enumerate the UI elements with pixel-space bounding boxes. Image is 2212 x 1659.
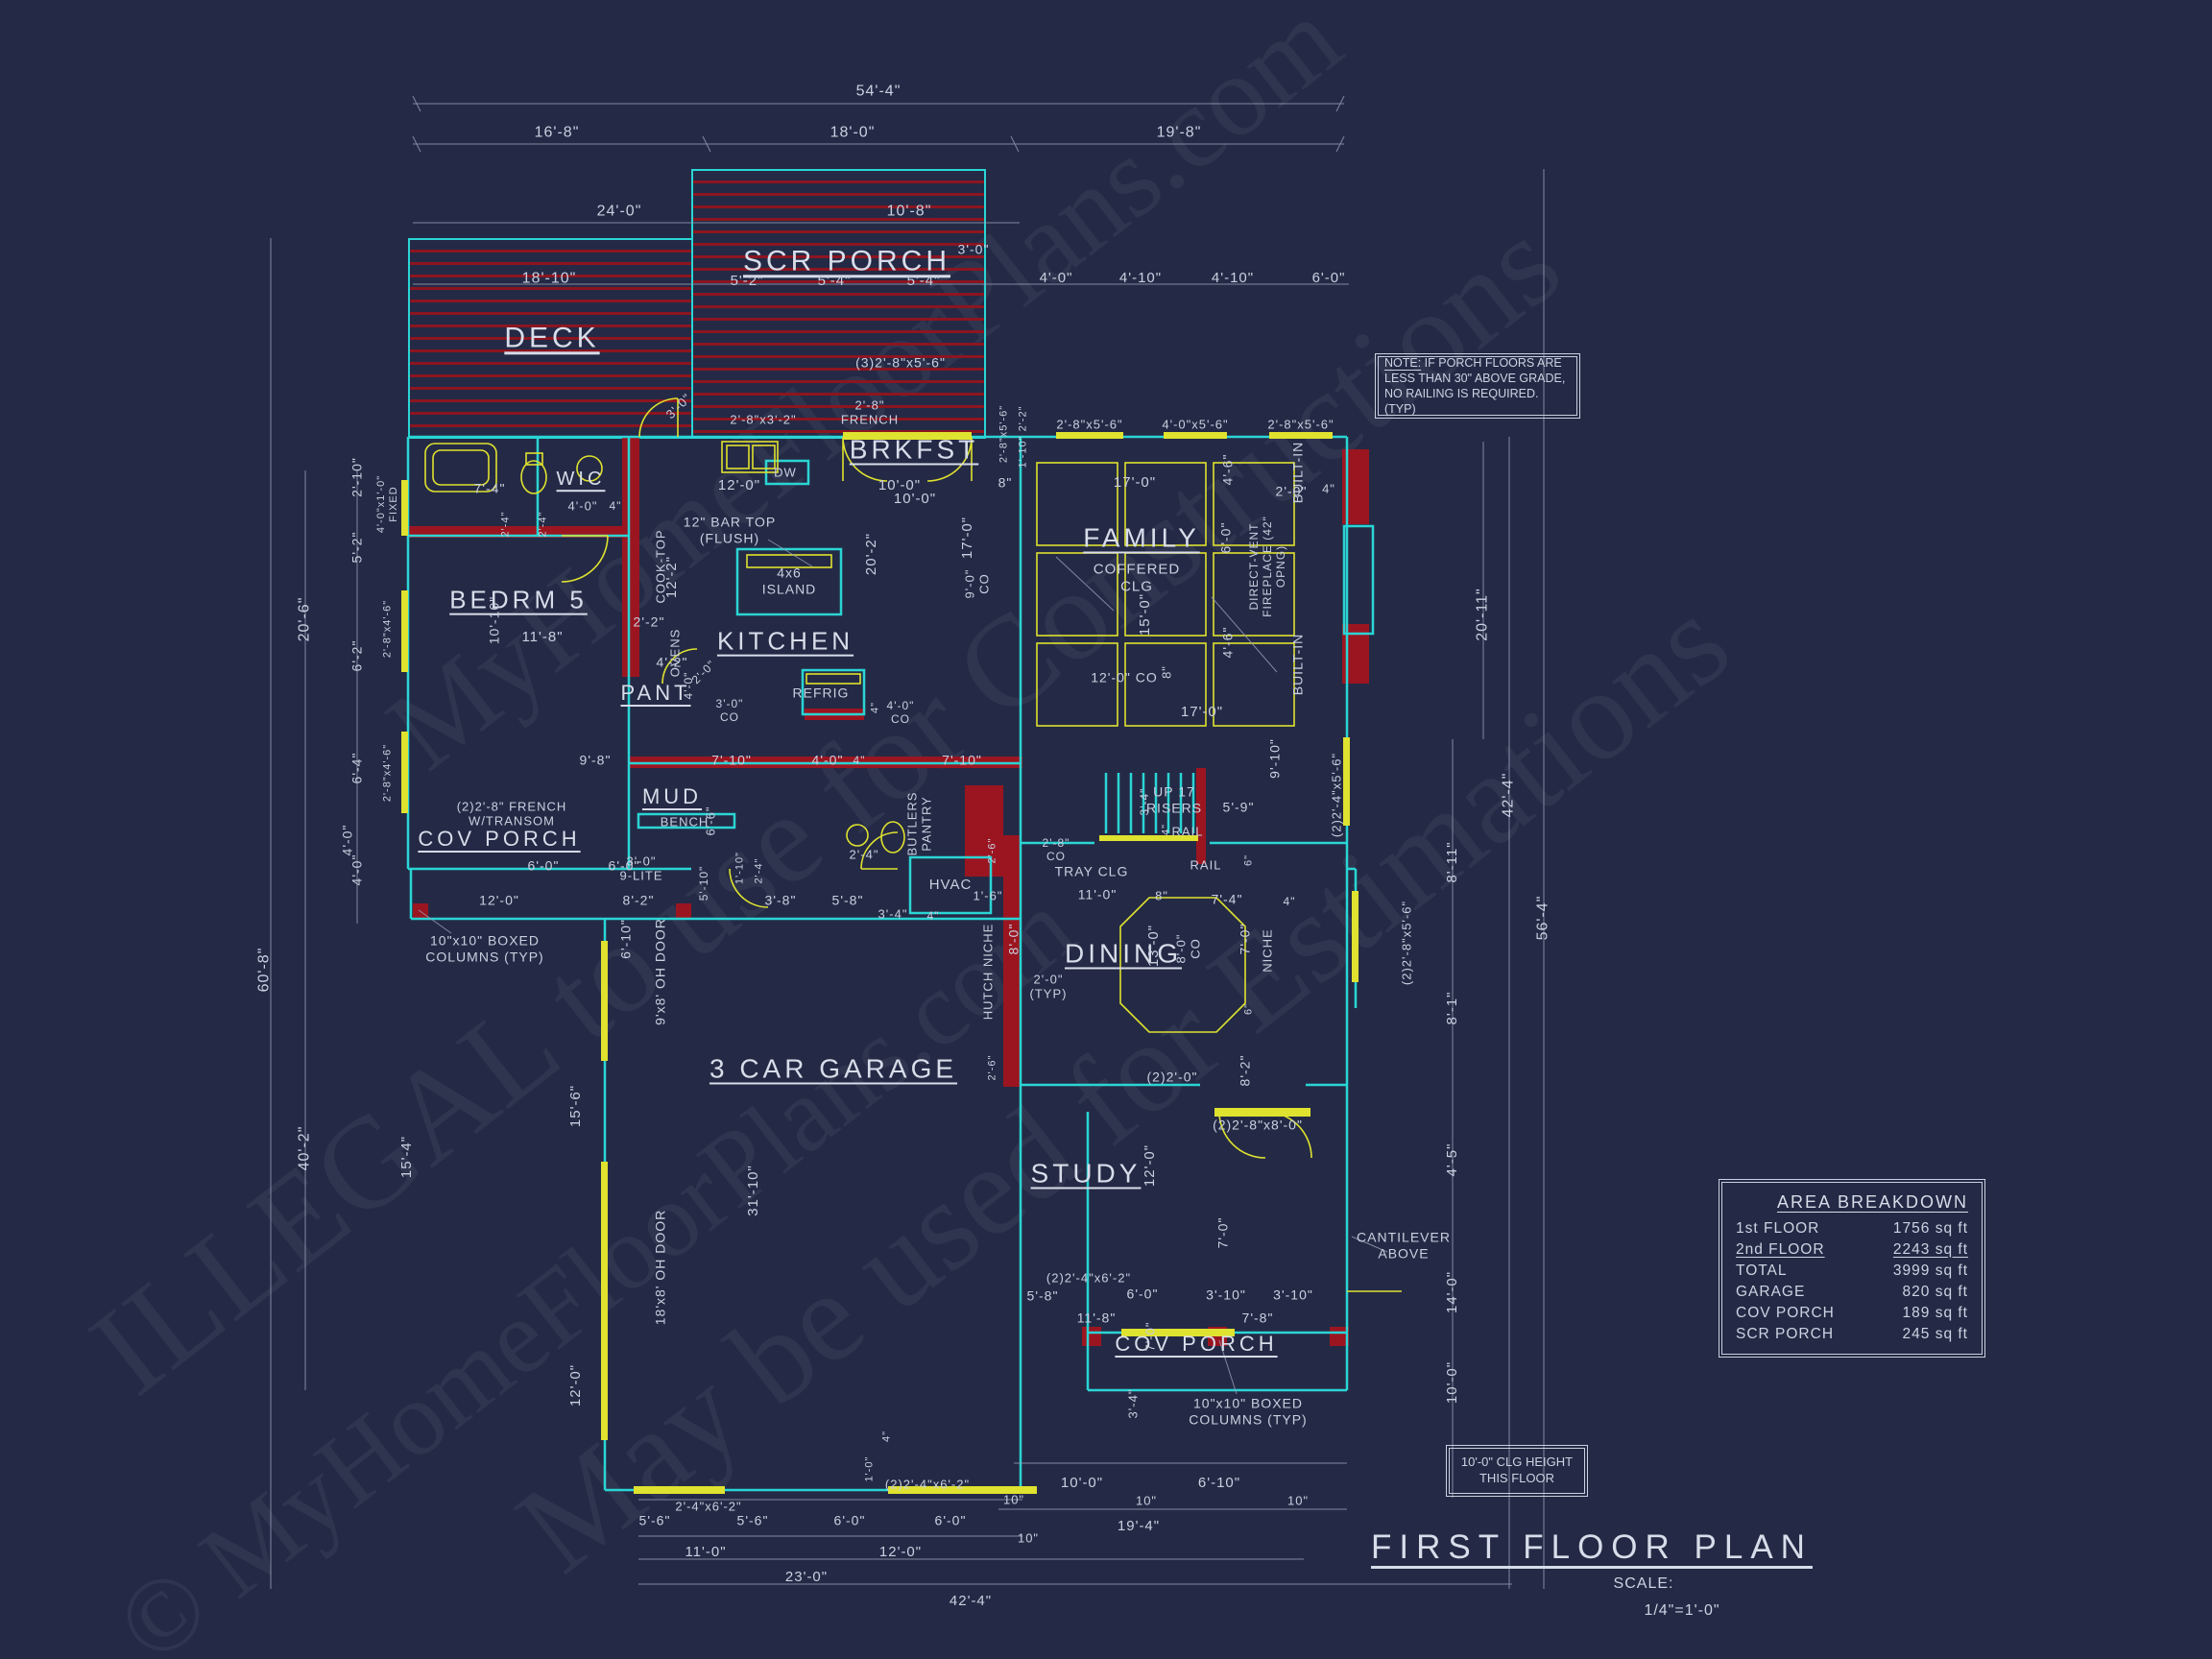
dimension-label: 7'-10" [711,753,752,769]
dimension-label: 6'-0" [1127,1286,1159,1303]
dimension-label: 2'-8"x5'-6" [1056,417,1122,431]
dimension-label: 4'-0" [349,854,366,886]
area-breakdown-title: AREA BREAKDOWN [1736,1192,1968,1213]
area-table-row: COV PORCH189 sq ft [1736,1303,1968,1324]
dimension-label: RAIL [1172,824,1204,838]
dimension-label: 10" [1136,1493,1157,1507]
dimension-label: 2'-4" [754,858,766,884]
room-label: FAMILY [1083,521,1200,553]
dimension-label: 14'-0" [1444,1271,1461,1313]
dimension-label: CANTILEVER ABOVE [1357,1229,1451,1261]
room-label: WIC [557,469,606,492]
area-row-label: SCR PORCH [1736,1324,1834,1345]
dimension-label: (3)2'-8"x5'-6" [855,355,946,372]
plan-title: FIRST FLOOR PLAN [1371,1528,1813,1567]
dimension-label: 5'-9" [1223,800,1255,816]
dimension-label: 3'-10" [1273,1287,1313,1304]
dimension-label: 3'-8" [765,893,797,909]
dimension-label: (2)2'-4"x6'-2" [885,1477,970,1491]
dimension-label: 2'-4"x6'-2" [675,1499,741,1513]
dimension-label: DW [774,465,797,479]
dimension-label: 1'-10" [734,852,747,884]
dimension-label: 8'-0" [1006,924,1022,955]
dimension-label: 24'-0" [597,204,642,222]
room-label: BRKFST [850,433,978,465]
dimension-label: (2)2'-8" FRENCH W/TRANSOM [457,800,567,829]
dimension-label: 4'-2" [657,655,688,671]
dimension-label: 60'-8" [256,948,275,993]
dimension-label: (2)2'-8"x5'-6" [1399,901,1413,985]
dimension-label: 11'-8" [521,629,563,646]
dimension-label: HUTCH NICHE [980,924,995,1021]
dimension-label: 1'-0" [864,1456,877,1482]
dimension-label: 6'-2" [349,640,366,672]
note-line3: NO RAILING IS REQUIRED. (TYP) [1384,386,1571,418]
dimension-label: 3'-0" CO [716,697,744,724]
dimension-label: 8'-0" CO [1174,934,1204,964]
dimension-label: 2'-8"x3'-2" [730,412,796,426]
dimension-label: 4'-0"x5'-6" [1162,417,1228,431]
room-label: DINING [1065,937,1182,969]
dimension-label: 4'-10" [1119,270,1162,287]
dimension-label: 3'-0" [958,242,990,258]
area-row-label: TOTAL [1736,1261,1788,1282]
dimension-label: 10" [1018,1530,1039,1545]
dimension-label: 10" [1003,1492,1024,1506]
dimension-label: TRAY CLG [1055,864,1129,880]
dimension-label: 2'-10" [349,457,366,497]
scale-label: SCALE: [1614,1575,1674,1593]
dimension-label: 12'-0" [567,1364,585,1407]
room-label: KITCHEN [717,627,854,657]
dimension-label: 40'-2" [297,1126,315,1171]
dimension-label: 2'-8"x5'-6" [998,405,1011,463]
dimension-label: 9'x8' OH DOOR [653,918,669,1025]
dimension-label: 5'-2" [349,532,366,564]
room-label: COV PORCH [1115,1332,1277,1357]
dimension-label: 6'-0" [935,1513,967,1529]
dimension-label: 6'-10" [618,919,635,959]
ceiling-height-box: 10'-0" CLG HEIGHT THIS FLOOR [1446,1445,1588,1497]
dimension-label: 4" [1161,824,1173,835]
dimension-label: 6'-0" [1312,270,1346,287]
dimension-label: 19'-4" [1118,1518,1160,1535]
dimension-label: 7'-0" [1215,1217,1232,1249]
scale-value: 1/4"=1'-0" [1644,1602,1719,1620]
dimension-label: 2'-6" [987,838,999,864]
dimension-label: 4'-6" [1220,454,1237,486]
dimension-label: 15'-6" [567,1085,585,1127]
dimension-label: 11'-8" [1077,1310,1117,1327]
dimension-label: 2'-8" FRENCH [841,398,899,428]
dimension-label: 8" [998,475,1013,492]
room-label: PANT [620,681,690,706]
dimension-label: 23'-0" [785,1569,828,1586]
dimension-label: 17'-0" [1181,704,1223,721]
dimension-label: 54'-4" [856,84,902,102]
dimension-label: (2)2'-0" [1147,1070,1198,1086]
dimension-label: 12'-0" [879,1544,922,1561]
area-table-row: TOTAL3999 sq ft [1736,1261,1968,1282]
dimension-label: 5'-6" [737,1513,769,1529]
dimension-label: (2)2'-4"x6'-2" [1046,1270,1131,1285]
dimension-label: 2'-4" [850,847,879,861]
dimension-label: 5'-4" [818,273,852,290]
dimension-label: 7'-4" [1212,892,1243,908]
dimension-label: 7'-8" [1242,1310,1274,1327]
clg-line2: THIS FLOOR [1479,1471,1554,1487]
dimension-label: 8'-1" [1444,992,1461,1025]
dimension-label: COFFERED CLG [1094,561,1181,594]
dimension-label: 16'-8" [535,125,580,143]
dimension-label: COOK-TOP [653,529,667,603]
room-label: STUDY [1031,1157,1142,1189]
dimension-label: 3'-4" [878,906,908,921]
dimension-label: 4'-0" [568,498,598,513]
dimension-label: 2'-8"x4'-6" [382,600,395,658]
dimension-label: 4" [854,754,866,767]
dimension-label: 4'-0" [1040,270,1073,287]
dimension-label: (2)2'-4"x5'-6" [1329,753,1343,837]
dimension-label: 8'-2" [623,893,655,909]
dimension-label: 9'-10" [1267,738,1284,779]
floor-plan-canvas: MyHomeFloorPlans.comILLEGAL to use for C… [0,0,2212,1659]
dimension-label: 1'-6" [974,888,1003,902]
dimension-label: 2'-2" [634,614,665,631]
dimension-label: 6" [1243,854,1256,866]
dimension-label: 8'-2" [1238,1055,1254,1087]
dimension-label: 4" [881,1431,894,1442]
dimension-label: (2)2'-8"x8'-0" [1213,1118,1303,1134]
dimension-label: 5'-8" [832,893,864,909]
area-breakdown-table: AREA BREAKDOWN 1st FLOOR1756 sq ft2nd FL… [1719,1179,1985,1358]
dimension-label: 2'-8"x5'-6" [1267,417,1334,431]
dimension-label: 6'-10" [1198,1475,1240,1492]
note-line2: LESS THAN 30" ABOVE GRADE, [1384,371,1565,386]
dimension-label: HVAC [929,877,973,894]
dimension-label: 10'-0" [1061,1475,1103,1492]
dimension-label: BUILT-IN [1290,442,1307,504]
area-row-value: 245 sq ft [1903,1324,1968,1345]
dimension-label: 15'-4" [398,1136,416,1178]
area-row-label: GARAGE [1736,1282,1805,1303]
area-breakdown-rows: 1st FLOOR1756 sq ft2nd FLOOR2243 sq ftTO… [1736,1218,1968,1345]
dimension-label: 7'-0" [1238,924,1254,955]
dimension-label: 4" [610,499,622,513]
dimension-label: BUILT-IN [1290,634,1307,696]
dimension-label: 18'-0" [830,125,876,143]
dimension-label: 1'-10" 2'-2" [1018,406,1030,469]
dimension-label: 42'-4" [1501,773,1519,818]
area-row-label: 2nd FLOOR [1736,1239,1825,1261]
area-row-label: 1st FLOOR [1736,1218,1819,1239]
dimension-label: 8" [1159,665,1173,679]
dimension-label: 7'-0" [1142,1322,1157,1352]
dimension-label: 2'-6" [987,1055,999,1081]
dimension-label: 20'-2" [863,533,880,575]
dimension-label: 20'-11" [1475,588,1493,640]
dimension-label: 5'-6" [639,1513,671,1529]
dimension-label: 42'-4" [950,1593,992,1610]
dimension-label: 12'-0" [479,893,519,909]
dimension-label: 10" [1287,1493,1309,1507]
dimension-label: 3'-0" 9-LITE [619,854,662,884]
dimension-label: 6'-4" [349,753,366,784]
dimension-label: 6'-6" [703,806,717,836]
area-row-value: 189 sq ft [1903,1303,1968,1324]
dimension-label: RAIL [1190,857,1222,872]
area-table-row: 1st FLOOR1756 sq ft [1736,1218,1968,1239]
dimension-label: 12'-0" [1142,1144,1159,1187]
dimension-label: 4'-6" [1220,627,1237,659]
dimension-label: 4x6 ISLAND [762,565,817,596]
dimension-label: 19'-8" [1157,125,1202,143]
dimension-label: BENCH [661,814,709,829]
dimension-label: 5'-2" [731,273,764,290]
dimension-label: 17'-0" [959,517,976,559]
dimension-label: 12'-0" CO [1091,670,1158,686]
dimension-label: 10'-10" [487,596,503,644]
dimension-label: 12'-0" [718,477,760,494]
dimension-label: 4'-0" [812,753,844,769]
area-row-value: 820 sq ft [1903,1282,1968,1303]
dimension-label: 5'-10" [697,866,710,902]
porch-note-box: NOTE: IF PORCH FLOORS ARE LESS THAN 30" … [1375,353,1580,419]
dimension-label: 3'-4" [1125,1389,1140,1419]
room-label: BEDRM 5 [449,586,588,615]
dimension-label: 12" BAR TOP (FLUSH) [684,514,776,545]
plan-linework [0,0,2212,1659]
dimension-label: 6'-0" [834,1513,866,1529]
dimension-label: 6'-0" [528,858,560,875]
dimension-label: 10'-0" [1444,1361,1461,1404]
dimension-label: 4" [870,702,882,713]
dimension-label: 2'-4" [500,512,513,538]
dimension-label: 4'-0" [340,825,356,856]
area-row-label: COV PORCH [1736,1303,1835,1324]
dimension-label: 6" [1243,1003,1256,1015]
dimension-label: 4" [1284,895,1296,908]
dimension-label: 2'-8"x4'-6" [382,744,395,802]
dimension-label: 18'-10" [522,271,577,289]
dimension-label: 20'-6" [297,597,315,642]
dimension-label: 4" [1322,481,1335,495]
dimension-label: 9'-8" [580,753,612,769]
area-row-value: 2243 sq ft [1893,1239,1968,1261]
dimension-label: 18'x8' OH DOOR [653,1210,669,1325]
dimension-label: 10"x10" BOXED COLUMNS (TYP) [1189,1395,1307,1427]
note-line1: IF PORCH FLOORS ARE [1421,356,1562,370]
room-label: DECK [504,321,599,354]
dimension-label: 4'-0"x1'-0" FIXED [375,475,400,533]
dimension-label: 3'-4" [1138,788,1151,816]
dimension-label: 7'-10" [942,753,982,769]
dimension-label: 11'-0" [685,1544,726,1561]
dimension-label: NICHE [1260,928,1274,972]
dimension-label: 10'-8" [887,204,932,222]
area-table-row: GARAGE820 sq ft [1736,1282,1968,1303]
dimension-label: 3'-10" [1206,1287,1246,1304]
area-row-value: 3999 sq ft [1893,1261,1968,1282]
dimension-label: 2'-0" (TYP) [1030,973,1068,1002]
dimension-label: 6'-0" [1218,522,1235,554]
dimension-label: 2'-4" [538,512,550,538]
dimension-label: 4'-0" [682,672,695,700]
area-table-row: 2nd FLOOR2243 sq ft [1736,1239,1968,1261]
clg-line1: 10'-0" CLG HEIGHT [1461,1455,1573,1471]
dimension-label: 15'-0" [1137,593,1154,636]
dimension-label: 13'-0" [1145,925,1163,967]
area-row-value: 1756 sq ft [1893,1218,1968,1239]
dimension-label: UP 17 RISERS [1146,783,1202,815]
dimension-label: 4'-5" [1444,1143,1461,1177]
dimension-label: 2'-8" CO [1043,836,1070,863]
dimension-label: 5'-8" [1027,1288,1059,1305]
dimension-label: 10"x10" BOXED COLUMNS (TYP) [425,932,543,964]
dimension-label: 4" [927,909,940,923]
area-table-row: SCR PORCH245 sq ft [1736,1324,1968,1345]
dimension-label: 9'-0" CO [963,569,993,599]
dimension-label: 10'-0" [878,477,921,494]
dimension-label: 31'-10" [745,1165,762,1216]
dimension-label: 8'-11" [1444,841,1461,882]
dimension-label: BUTLERS PANTRY [905,792,935,856]
dimension-label: REFRIG [793,685,850,702]
dimension-label: 7'-4" [474,481,506,497]
dimension-label: 11'-0" [1078,887,1118,903]
dimension-label: 4'-0" CO [887,699,915,726]
dimension-label: 56'-4" [1535,896,1553,941]
room-label: COV PORCH [418,827,580,852]
dimension-label: DIRECT-VENT FIREPLACE (42" OPNG) [1247,516,1287,617]
dimension-label: 8" [1155,888,1168,902]
room-label: MUD [642,784,702,809]
dimension-label: 17'-0" [1114,474,1156,492]
dimension-label: 5'-4" [907,273,941,290]
note-label: NOTE: [1384,356,1421,370]
dimension-label: 4'-10" [1212,270,1254,287]
room-label: 3 CAR GARAGE [709,1052,957,1084]
